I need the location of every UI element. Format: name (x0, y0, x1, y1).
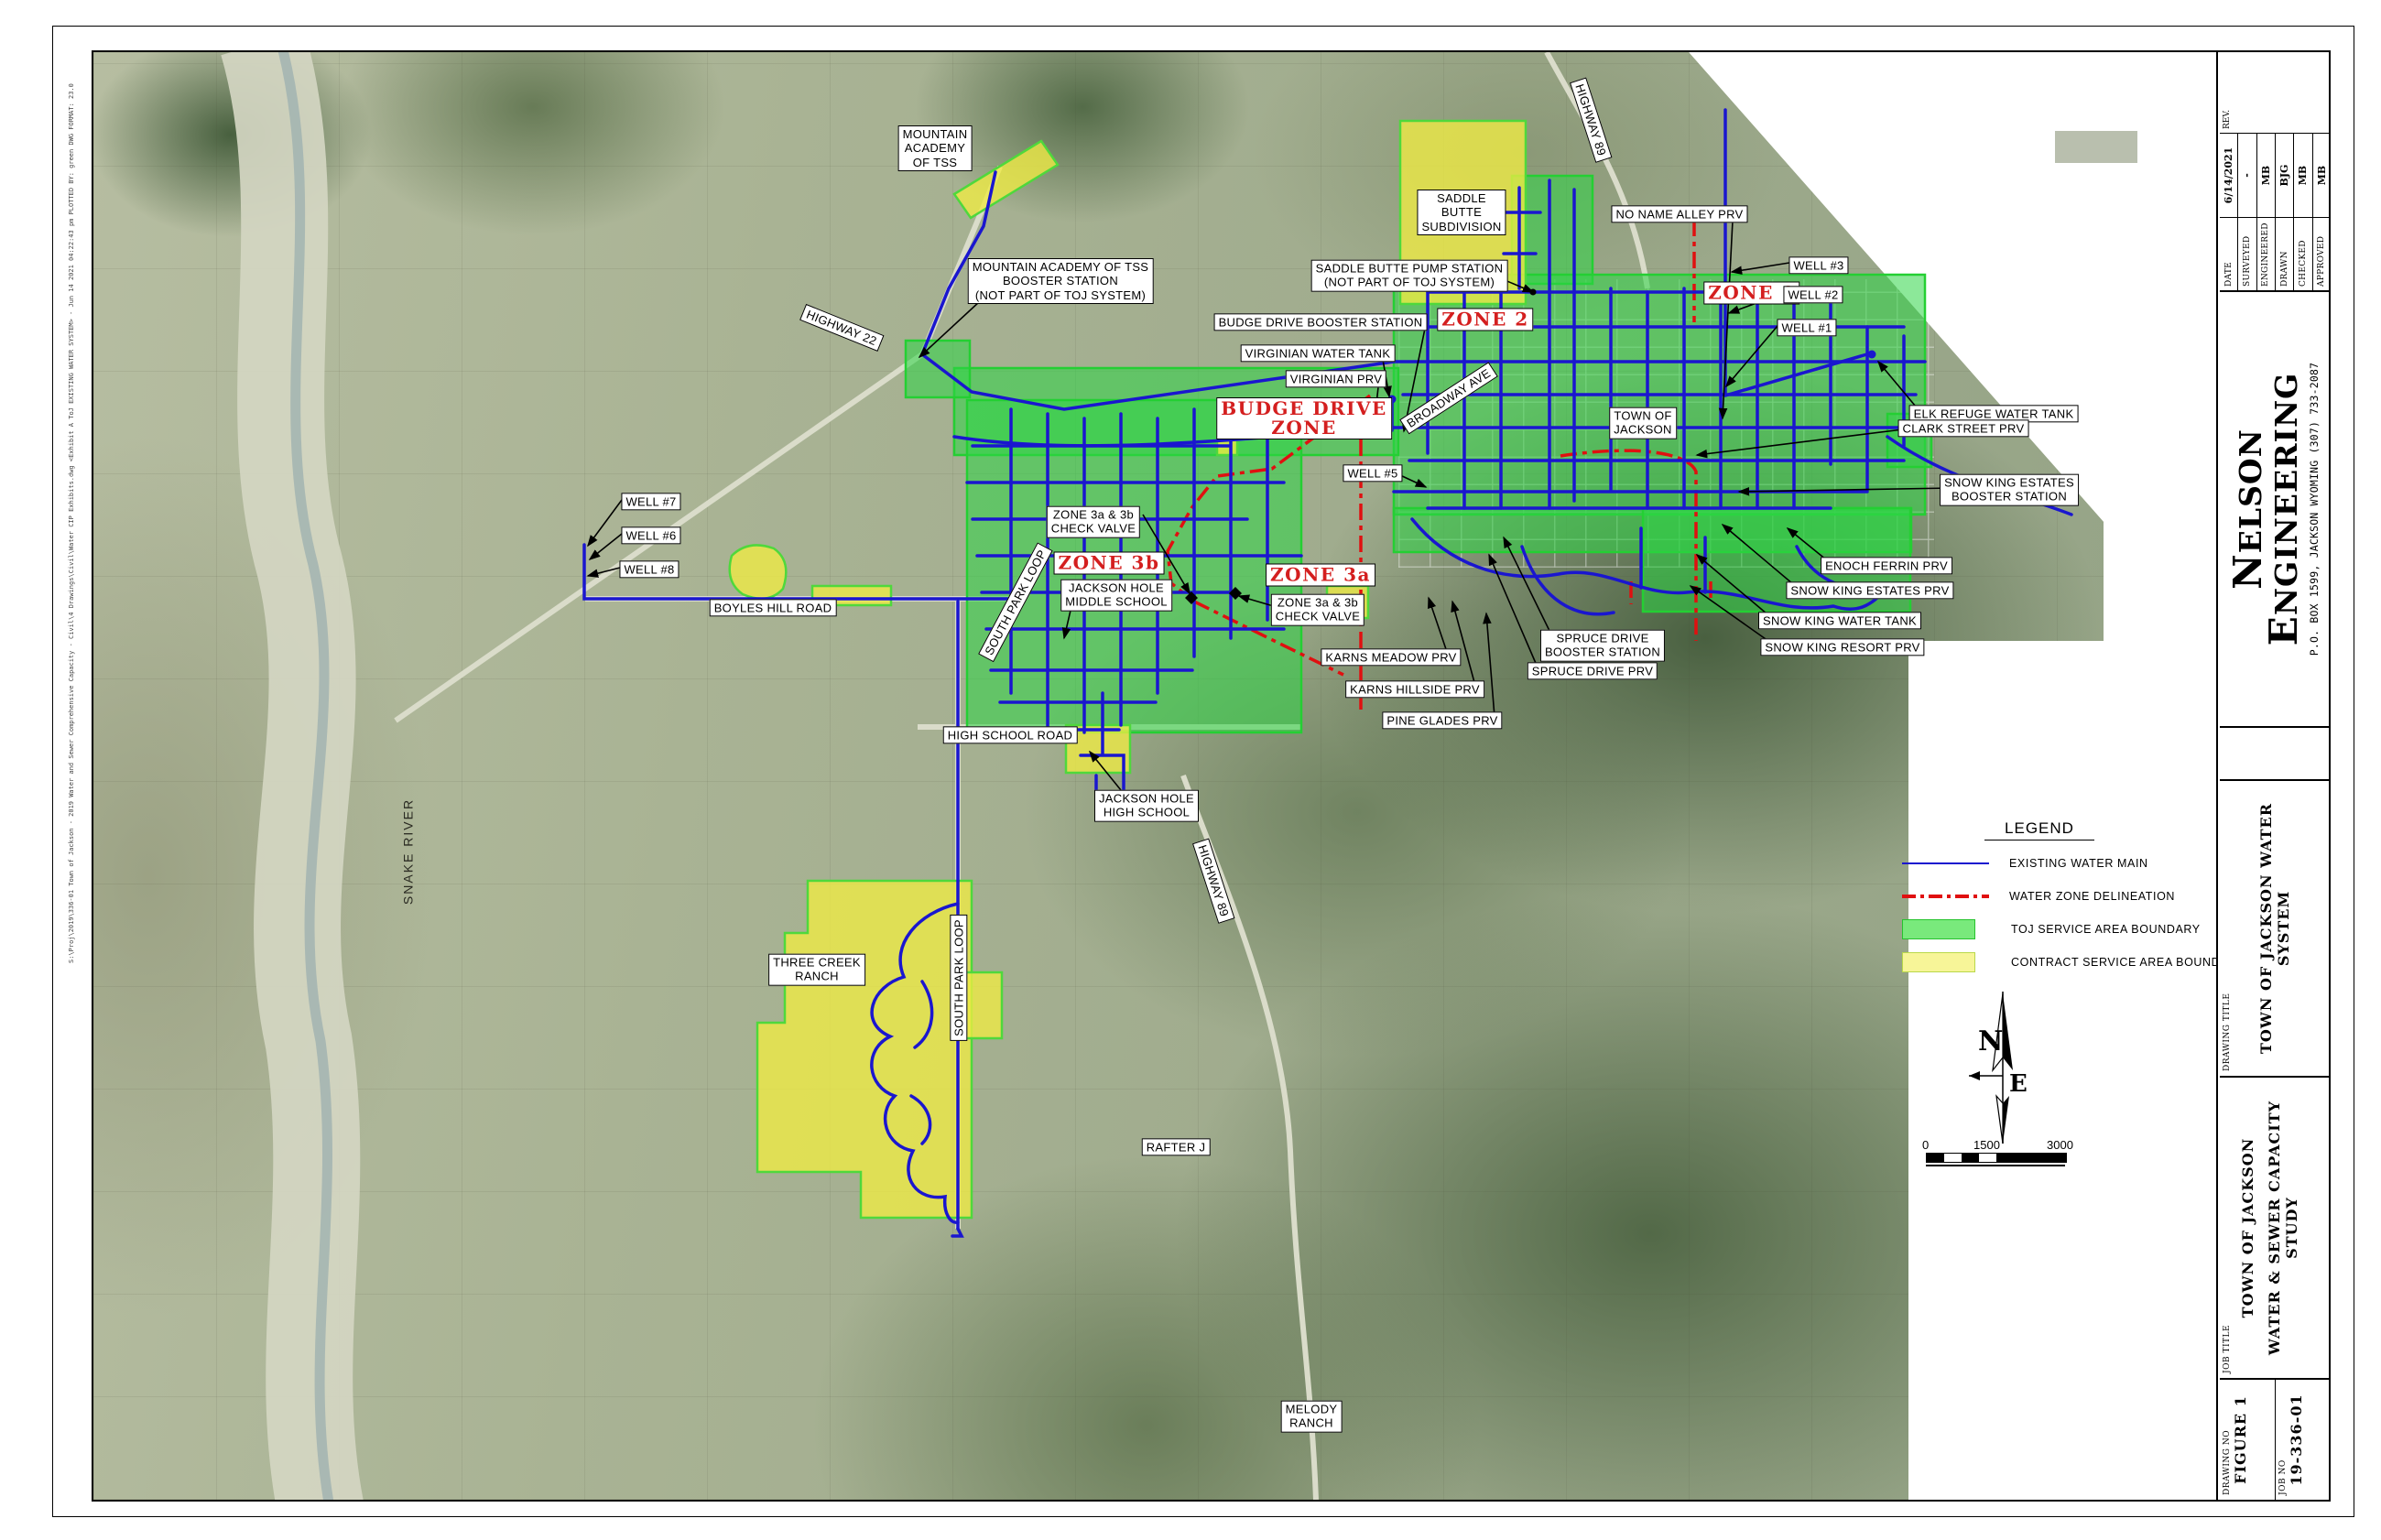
no-name-alley-prv-label: NO NAME ALLEY PRV (1611, 205, 1747, 222)
toj-swatch (1902, 919, 1975, 939)
legend-item: WATER ZONE DELINEATION (1902, 886, 2216, 906)
job-no-cell: JOB NO 19-336-01 (2276, 1380, 2331, 1500)
rev-row-value: 6/14/2021 (2220, 134, 2238, 217)
mountain-academy-of-tss-label: MOUNTAIN ACADEMY OF TSS (898, 125, 973, 171)
three-creek-ranch-label: THREE CREEK RANCH (768, 954, 865, 986)
company-address: P.O. BOX 1599, JACKSON WYOMING (307) 733… (2308, 363, 2321, 656)
jackson-hole-high-school-label: JACKSON HOLE HIGH SCHOOL (1094, 790, 1199, 822)
legend-item: CONTRACT SERVICE AREA BOUNDARY (1902, 952, 2216, 972)
zone-3b-label: ZONE 3b (1054, 552, 1165, 575)
company-section: NELSON ENGINEERING P.O. BOX 1599, JACKSO… (2220, 290, 2331, 726)
company-name-line1: NELSON (2230, 428, 2266, 590)
rev-values: 6/14/2021-MBBJGMBMB (2220, 133, 2331, 217)
high-school-road-label: HIGH SCHOOL ROAD (943, 726, 1078, 743)
drawing-no-value: FIGURE 1 (2232, 1380, 2249, 1500)
snow-king-estates-booster-station-label: SNOW KING ESTATES BOOSTER STATION (1940, 474, 2079, 506)
rev-row-label: APPROVED (2313, 218, 2331, 290)
legend-item-label: TOJ SERVICE AREA BOUNDARY (2011, 923, 2201, 936)
rev-row-value: MB (2313, 134, 2331, 217)
map-area: MOUNTAIN ACADEMY OF TSSMOUNTAIN ACADEMY … (93, 52, 2216, 1500)
title-block-rotated: DRAWING NO FIGURE 1 JOB NO 19-336-01 JOB… (2220, 52, 2331, 1500)
karns-meadow-prv-label: KARNS MEADOW PRV (1321, 648, 1461, 666)
jackson-hole-middle-school-label: JACKSON HOLE MIDDLE SCHOOL (1060, 580, 1172, 612)
rev-row-label: ENGINEERED (2257, 218, 2276, 290)
revision-section: DATESURVEYEDENGINEEREDDRAWNCHECKEDAPPROV… (2220, 52, 2331, 290)
rev-row-value: - (2238, 134, 2256, 217)
rev-row-value: MB (2294, 134, 2312, 217)
spruce-drive-prv-label: SPRUCE DRIVE PRV (1528, 662, 1658, 679)
virginian-prv-label: VIRGINIAN PRV (1286, 370, 1386, 387)
pine-glades-prv-label: PINE GLADES PRV (1382, 711, 1502, 729)
enoch-ferrin-prv-label: ENOCH FERRIN PRV (1821, 557, 1952, 574)
town-of-jackson-label: TOWN OF JACKSON (1609, 407, 1677, 439)
company-name-line2: ENGINEERING (2266, 373, 2301, 646)
compass-east-letter: E (2009, 1070, 2028, 1098)
title-block: DRAWING NO FIGURE 1 JOB NO 19-336-01 JOB… (2216, 52, 2329, 1500)
drawing-title-section: DRAWING TITLE TOWN OF JACKSON WATER SYST… (2220, 779, 2331, 1076)
zone-2-label: ZONE 2 (1437, 309, 1533, 331)
aerial-photo-fragment (2055, 131, 2137, 163)
rev-row-value: BJG (2276, 134, 2294, 217)
job-title-label: JOB TITLE (2220, 1078, 2232, 1378)
boyles-hill-road-label: BOYLES HILL ROAD (710, 599, 837, 616)
rev-labels: DATESURVEYEDENGINEEREDDRAWNCHECKEDAPPROV… (2220, 217, 2331, 290)
well-3-label: WELL #3 (1788, 256, 1848, 274)
rev-row-value: MB (2257, 134, 2276, 217)
legend-title: LEGEND (1984, 819, 2094, 840)
water-main-swatch (1902, 862, 1989, 864)
legend-items: EXISTING WATER MAINWATER ZONE DELINEATIO… (1902, 853, 2216, 972)
rev-row-label: DATE (2220, 218, 2238, 290)
budge-drive-booster-station-label: BUDGE DRIVE BOOSTER STATION (1214, 313, 1428, 331)
scale-bar: 0 1500 3000 (1920, 1138, 2158, 1166)
scale-tick-1500: 1500 (1973, 1138, 2000, 1152)
melody-ranch-label: MELODY RANCH (1281, 1401, 1343, 1433)
north-arrow: N E (1952, 986, 2053, 1151)
contract-swatch (1902, 952, 1975, 972)
south-park-loop-south-label: SOUTH PARK LOOP (950, 915, 967, 1041)
legend-item: EXISTING WATER MAIN (1902, 853, 2216, 873)
zone-line-swatch (1902, 895, 1989, 898)
job-no-value: 19-336-01 (2288, 1380, 2305, 1500)
spruce-drive-booster-station-label: SPRUCE DRIVE BOOSTER STATION (1540, 630, 1665, 662)
scale-tick-3000: 3000 (2047, 1138, 2073, 1152)
legend-item-label: EXISTING WATER MAIN (2009, 857, 2148, 870)
drawing-no-label: DRAWING NO (2220, 1380, 2232, 1500)
legend-item-label: CONTRACT SERVICE AREA BOUNDARY (2011, 956, 2216, 969)
drawing-number-section: DRAWING NO FIGURE 1 JOB NO 19-336-01 (2220, 1378, 2331, 1500)
virginian-water-tank-label: VIRGINIAN WATER TANK (1241, 344, 1396, 362)
title-block-spacer (2220, 726, 2331, 779)
legend: LEGEND EXISTING WATER MAINWATER ZONE DEL… (1902, 819, 2216, 972)
rafter-j-label: RAFTER J (1142, 1138, 1211, 1155)
job-no-label: JOB NO (2276, 1380, 2288, 1500)
budge-drive-zone-label: BUDGE DRIVE ZONE (1216, 397, 1392, 439)
scale-bar-underline (1926, 1165, 2065, 1166)
drawing-sheet: S:\Proj\2019\336-01 Town of Jackson - 20… (0, 0, 2381, 1540)
saddle-butte-subdivision-label: SADDLE BUTTE SUBDIVISION (1417, 190, 1506, 235)
rev-history-cell: REV. (2220, 52, 2331, 133)
job-title-section: JOB TITLE TOWN OF JACKSON WATER & SEWER … (2220, 1076, 2331, 1378)
snow-king-water-tank-label: SNOW KING WATER TANK (1758, 612, 1921, 629)
compass-north-letter: N (1978, 1025, 2003, 1057)
zone-3ab-check-valve-upper-label: ZONE 3a & 3b CHECK VALVE (1047, 506, 1140, 538)
job-title-line1: TOWN OF JACKSON (2239, 1078, 2256, 1378)
clark-street-prv-label: CLARK STREET PRV (1898, 419, 2029, 437)
aerial-photo (93, 52, 2216, 1500)
saddle-butte-pump-station-label: SADDLE BUTTE PUMP STATION (NOT PART OF T… (1311, 260, 1508, 292)
zone-3a-label: ZONE 3a (1266, 564, 1375, 587)
snow-king-estates-prv-label: SNOW KING ESTATES PRV (1786, 581, 1953, 599)
rev-row-label: SURVEYED (2238, 218, 2256, 290)
zone-3ab-check-valve-lower-label: ZONE 3a & 3b CHECK VALVE (1271, 594, 1364, 626)
rev-header: REV. (2220, 52, 2234, 133)
drawing-title-value: TOWN OF JACKSON WATER SYSTEM (2257, 781, 2292, 1076)
well-5-label: WELL #5 (1343, 464, 1402, 482)
well-6-label: WELL #6 (621, 526, 680, 544)
karns-hillside-prv-label: KARNS HILLSIDE PRV (1345, 680, 1484, 698)
legend-item: TOJ SERVICE AREA BOUNDARY (1902, 919, 2216, 939)
mountain-academy-booster-station-label: MOUNTAIN ACADEMY OF TSS BOOSTER STATION … (968, 258, 1154, 304)
scale-bar-graphic (1926, 1153, 2067, 1163)
well-1-label: WELL #1 (1777, 319, 1836, 336)
plot-stamp-text: S:\Proj\2019\336-01 Town of Jackson - 20… (68, 83, 75, 963)
rev-row-label: DRAWN (2276, 218, 2294, 290)
rev-row-label: CHECKED (2294, 218, 2312, 290)
well-8-label: WELL #8 (619, 560, 679, 578)
well-2-label: WELL #2 (1783, 286, 1843, 303)
well-7-label: WELL #7 (621, 493, 680, 510)
drawing-title-label: DRAWING TITLE (2220, 781, 2232, 1076)
job-title-line2: WATER & SEWER CAPACITY STUDY (2266, 1078, 2300, 1378)
snake-river-label: SNAKE RIVER (400, 795, 418, 908)
snow-king-resort-prv-label: SNOW KING RESORT PRV (1760, 638, 1924, 656)
drawing-no-cell: DRAWING NO FIGURE 1 (2220, 1380, 2276, 1500)
legend-item-label: WATER ZONE DELINEATION (2009, 890, 2175, 903)
drawing-frame: MOUNTAIN ACADEMY OF TSSMOUNTAIN ACADEMY … (92, 50, 2331, 1502)
scale-tick-0: 0 (1922, 1138, 1929, 1152)
